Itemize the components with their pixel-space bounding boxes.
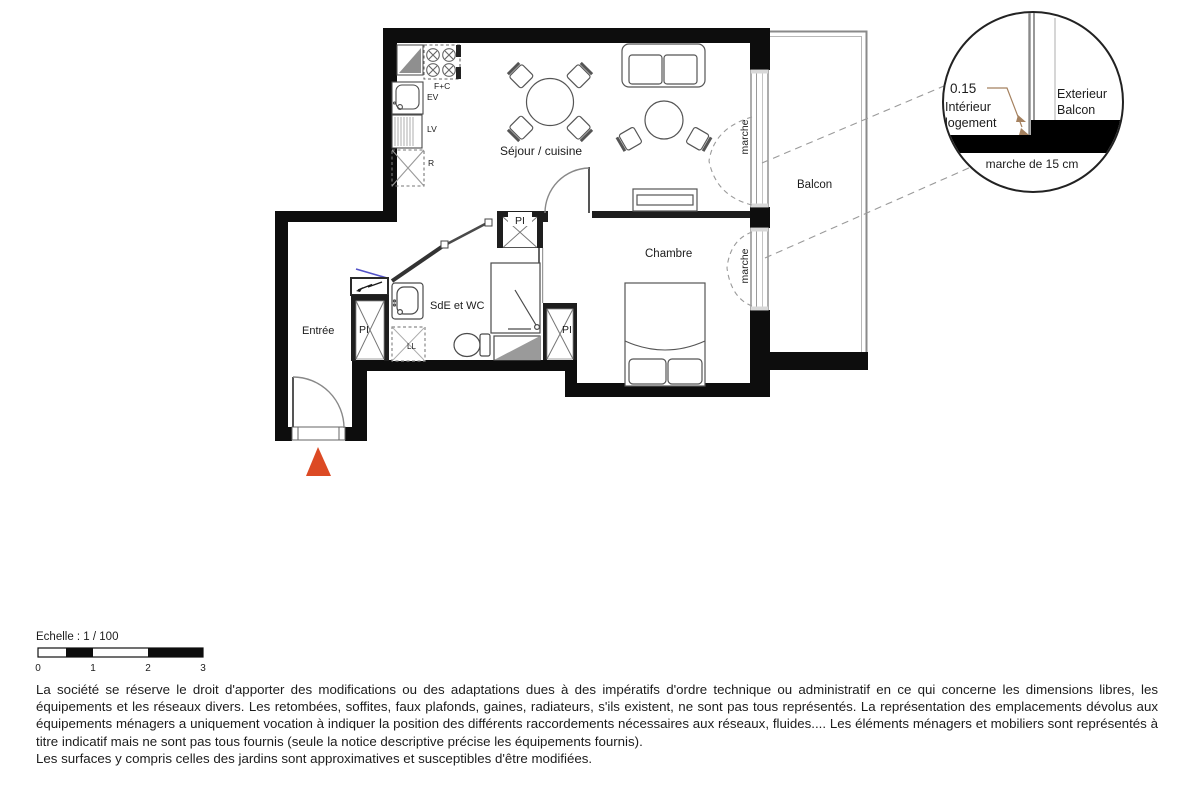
washbasin: [392, 283, 423, 319]
dining-chair: [507, 62, 534, 89]
label-step-bedroom: marche: [739, 248, 751, 283]
label-balcony: Balcon: [797, 179, 832, 191]
living-furniture: [507, 44, 711, 211]
scale-tick-0: 0: [35, 663, 41, 674]
dining-chair: [566, 62, 593, 89]
shower-step: [494, 336, 540, 360]
windows: [751, 70, 768, 310]
lounge-chair: [686, 127, 712, 152]
label-fridge: R: [428, 158, 434, 168]
detail-dimension: 0.15: [950, 81, 976, 96]
detail-interior-2: logement: [945, 116, 997, 130]
scale-label: Echelle : 1 / 100: [36, 631, 118, 643]
bedroom-furniture: [625, 283, 705, 386]
sofa: [622, 44, 705, 87]
toilet: [454, 334, 490, 357]
label-closet-entry: PI: [359, 324, 369, 336]
exterior-walls: [275, 28, 868, 441]
corner-cabinet: [397, 45, 423, 75]
electrical-cabinet: [351, 269, 388, 295]
label-closet-hall: PI: [515, 215, 525, 227]
detail-exterior-1: Exterieur: [1057, 87, 1107, 101]
label-entry: Entrée: [302, 325, 334, 337]
bedroom-door: [545, 167, 589, 213]
legal-disclaimer: La société se réserve le droit d'apporte…: [36, 681, 1158, 767]
disclaimer-surfaces-line: Les surfaces y compris celles des jardin…: [36, 750, 1158, 767]
scale-tick-3: 3: [200, 663, 206, 674]
balcony-outline: [770, 32, 867, 353]
label-bedroom: Chambre: [645, 248, 692, 260]
label-closet-bedroom: PI: [562, 324, 572, 336]
scale-tick-1: 1: [90, 663, 96, 674]
pillow: [629, 359, 666, 384]
bathroom-door: [441, 219, 492, 248]
disclaimer-paragraph: La société se réserve le droit d'apporte…: [36, 681, 1158, 750]
label-sink: EV: [427, 92, 439, 102]
pillow: [668, 359, 702, 384]
label-hob: F+C: [434, 81, 450, 91]
hob-unit: [424, 45, 461, 79]
scale-bar: Echelle : 1 / 100 0 1 2 3: [35, 631, 206, 674]
entrance-door: [292, 377, 345, 440]
bedroom-window: [751, 228, 768, 310]
closet-entry: [351, 295, 389, 361]
label-living: Séjour / cuisine: [500, 144, 582, 158]
scale-tick-2: 2: [145, 663, 151, 674]
label-dishwasher: LV: [427, 124, 437, 134]
coffee-table: [645, 101, 683, 139]
label-bathroom: SdE et WC: [430, 300, 484, 312]
entrance-marker-triangle: [306, 447, 331, 476]
dining-chair: [566, 115, 593, 142]
sink-unit: [392, 82, 423, 114]
dining-table: [527, 79, 574, 126]
detail-callout: 0.15 Intérieur logement Exterieur Balcon…: [762, 12, 1126, 258]
floor-plan-canvas: Séjour / cuisine Chambre Balcon Entrée S…: [0, 0, 1193, 800]
sideboard: [633, 189, 697, 211]
label-step-living: marche: [739, 119, 751, 154]
dining-chair: [507, 115, 534, 142]
label-laundry: LL: [407, 342, 416, 351]
detail-interior-1: Intérieur: [945, 100, 991, 114]
dishwasher-unit: [392, 115, 422, 148]
kitchen-units: [392, 45, 461, 186]
lounge-chair: [616, 127, 642, 152]
detail-exterior-2: Balcon: [1057, 103, 1095, 117]
living-room-window: [751, 70, 768, 207]
detail-caption: marche de 15 cm: [986, 157, 1079, 171]
shower: [491, 263, 540, 333]
